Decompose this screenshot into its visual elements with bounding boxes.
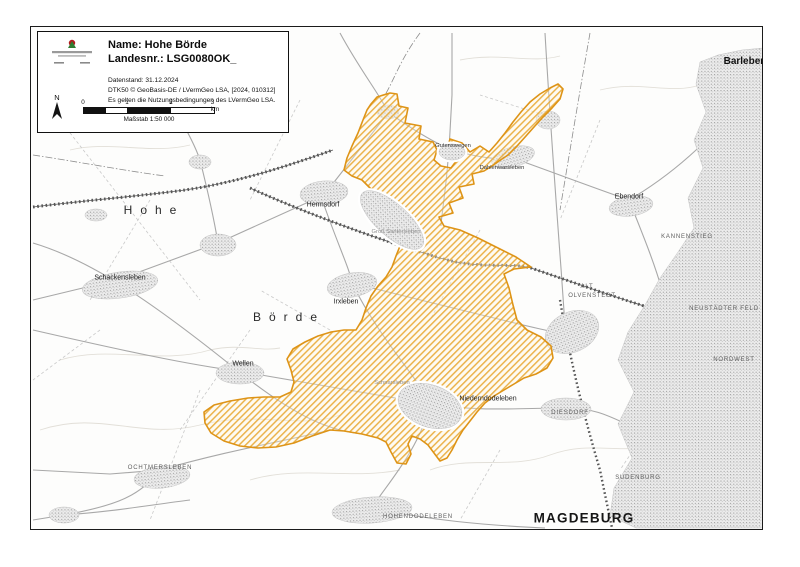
- map-label: NORDWEST: [713, 357, 754, 363]
- scale-tick: 2: [169, 99, 173, 106]
- map-label: Hermsdorf: [307, 202, 340, 209]
- source-text: DTK50 © GeoBasis-DE / LVermGeo LSA, [202…: [108, 86, 275, 96]
- area-name: Name: Hohe Börde: [108, 38, 236, 52]
- map-label: OLVENSTEDT: [568, 293, 616, 299]
- map-label: NEUSTÄDTER FELD: [689, 306, 759, 312]
- map-label: Gutenswegen: [435, 144, 471, 150]
- map-label: KANNENSTIEG: [661, 234, 713, 240]
- scale-bar-graphic: [83, 107, 215, 114]
- map-document: HoheBördeSchackenslebenHermsdorfIrxleben…: [0, 0, 800, 567]
- scale-tick: 3 km: [211, 99, 219, 113]
- north-label: N: [50, 93, 64, 102]
- map-label: Dahlenwarsleben: [480, 166, 525, 172]
- map-label: Schnarsleben: [374, 381, 409, 387]
- map-label: ALT: [581, 284, 594, 290]
- map-label: Börde: [253, 311, 325, 323]
- scale-ticks: 0 1 2 3 km: [83, 99, 215, 107]
- map-label: Barleben: [724, 57, 763, 67]
- protected-area-polygon: [204, 84, 563, 464]
- map-label: Hohe: [124, 204, 185, 216]
- scale-caption: Maßstab 1:50 000: [83, 116, 215, 123]
- scale-tick: 0: [81, 99, 85, 106]
- map-label: Wellen: [232, 361, 253, 368]
- map-label: DIESDORF: [551, 410, 588, 416]
- datenstand-text: Datenstand: 31.12.2024: [108, 76, 275, 86]
- legend-logo: [46, 38, 98, 72]
- legend-box: Name: Hohe Börde Landesnr.: LSG0080OK_ D…: [37, 31, 289, 133]
- map-label: HOHENDODELEBEN: [383, 514, 453, 520]
- map-label: Schackensleben: [94, 275, 145, 282]
- map-label: Groß Santersleben: [372, 230, 421, 236]
- map-label: Niederndodeleben: [459, 396, 516, 403]
- area-number: Landesnr.: LSG0080OK_: [108, 52, 236, 66]
- scale-bar: 0 1 2 3 km Maßstab 1:50 000: [83, 99, 215, 123]
- scale-tick: 1: [125, 99, 129, 106]
- map-label: MAGDEBURG: [534, 511, 635, 525]
- map-label: SUDENBURG: [615, 475, 661, 481]
- magdeburg-urban-area: [610, 48, 763, 528]
- north-arrow-icon: [50, 102, 64, 120]
- map-label: Ebendorf: [615, 194, 643, 201]
- north-arrow: N: [50, 93, 64, 125]
- map-label: Irxleben: [334, 299, 359, 306]
- map-label: OCHTMERSLEBEN: [128, 465, 192, 471]
